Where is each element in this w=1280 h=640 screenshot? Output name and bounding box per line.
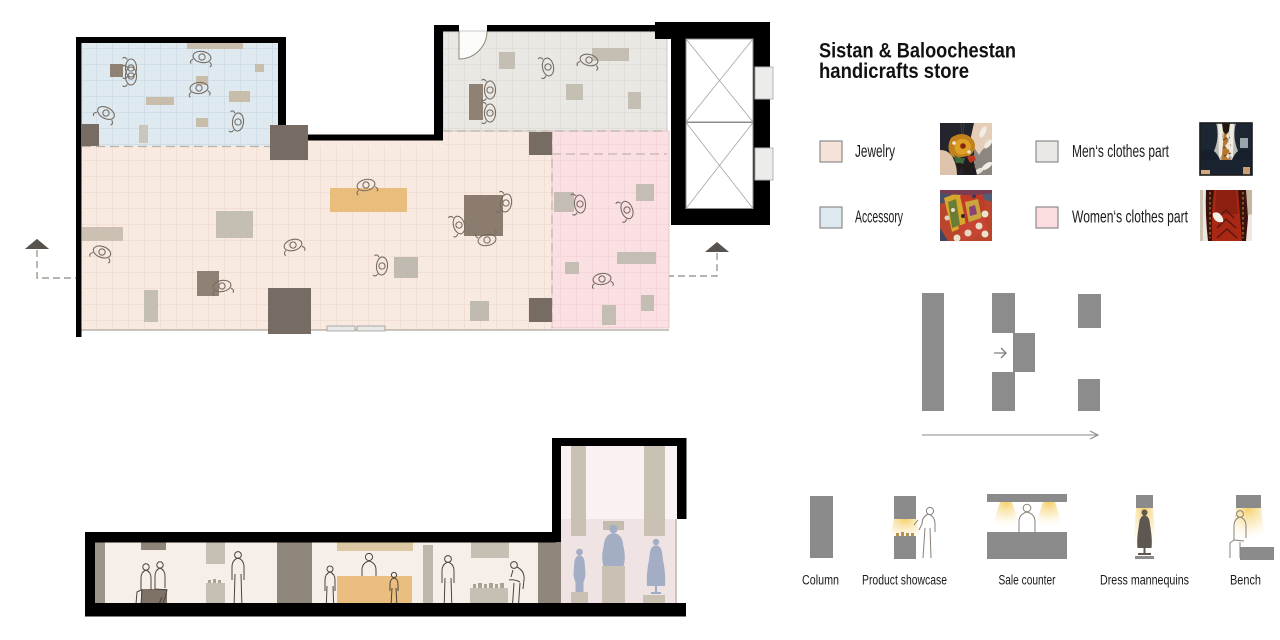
svg-text:Sale counter: Sale counter [999,573,1056,588]
svg-text:Jewelry: Jewelry [855,141,895,161]
svg-text:Women‘s clothes part: Women‘s clothes part [1072,207,1188,227]
svg-text:Column: Column [802,573,839,588]
svg-text:Dress mannequins: Dress mannequins [1100,573,1189,588]
svg-text:Bench: Bench [1230,573,1261,588]
svg-text:Product showcase: Product showcase [862,573,947,588]
svg-text:Accessory: Accessory [855,207,903,227]
svg-text:Men‘s clothes part: Men‘s clothes part [1072,141,1169,161]
svg-text:handicrafts store: handicrafts store [819,59,969,83]
